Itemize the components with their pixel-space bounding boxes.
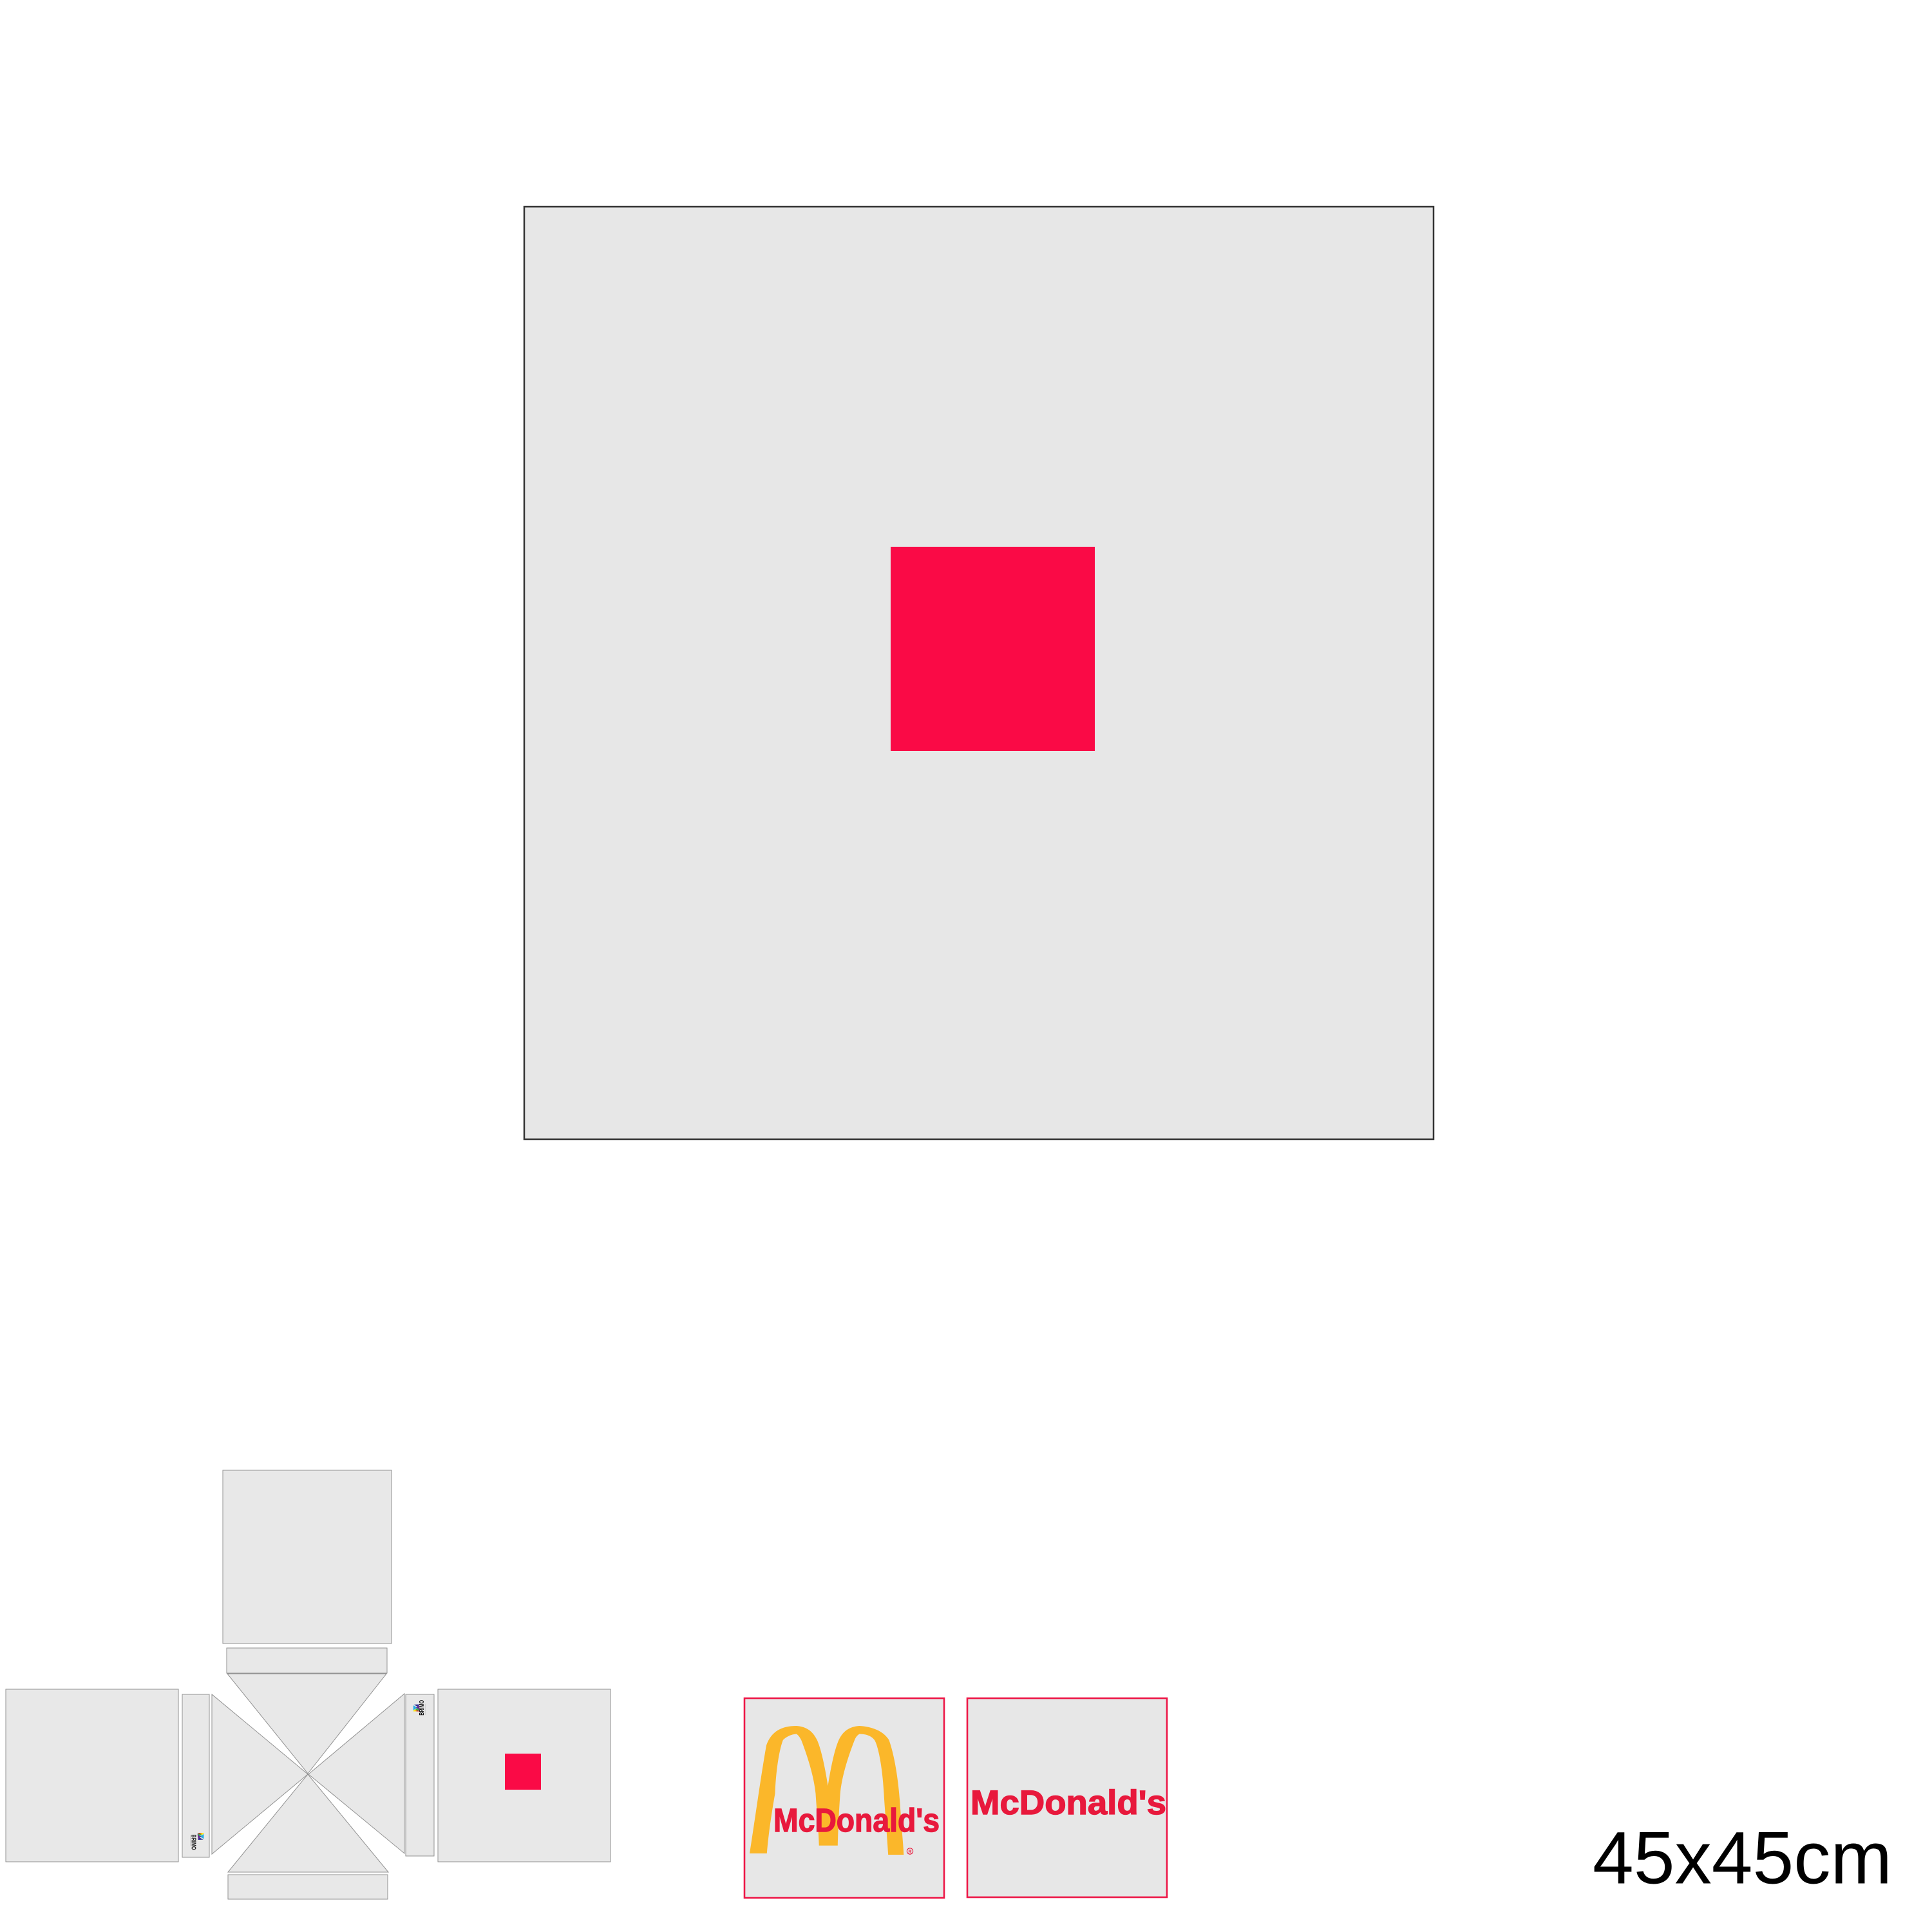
svg-text:BRIMO: BRIMO (419, 1700, 426, 1716)
svg-text:McDonald's: McDonald's (971, 1784, 1166, 1822)
svg-text:BRIMO: BRIMO (190, 1835, 198, 1850)
svg-text:McDonald's: McDonald's (773, 1802, 940, 1839)
svg-text:45x45cm: 45x45cm (1593, 1817, 1892, 1900)
svg-text:R: R (908, 1850, 911, 1855)
